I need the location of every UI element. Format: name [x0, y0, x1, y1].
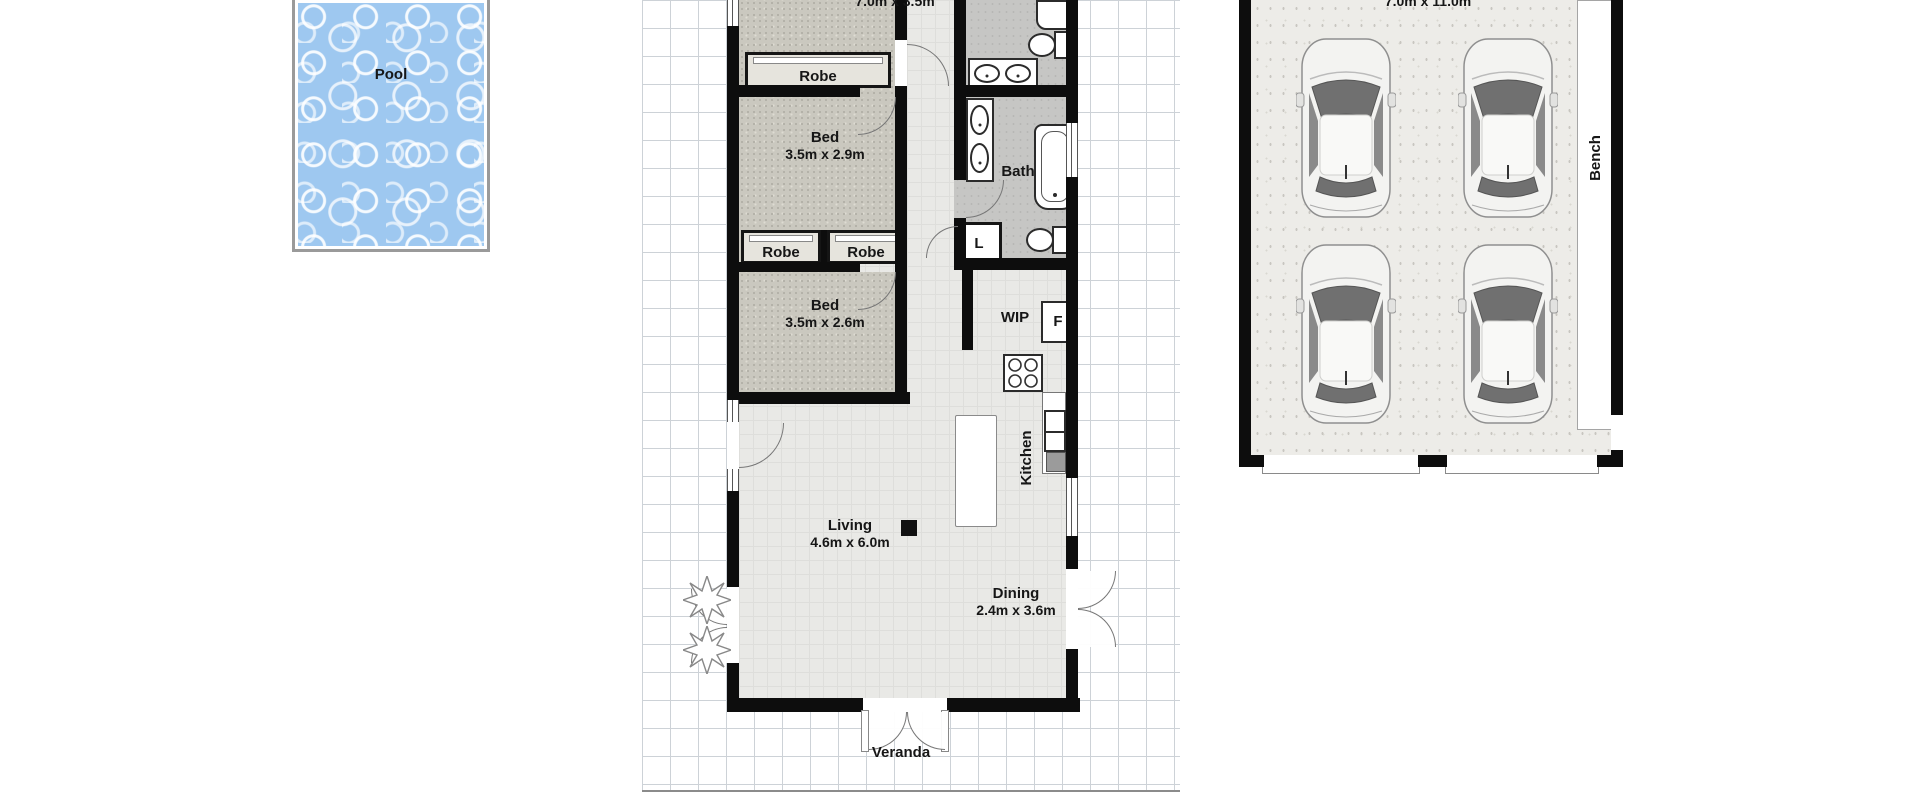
robe-sliding-door — [835, 235, 897, 242]
car-icon — [1296, 240, 1396, 428]
kitchen-label: Kitchen — [1019, 403, 1035, 513]
room-dims: 3.5m x 2.6m — [745, 314, 905, 330]
robe-left-label: Robe — [762, 245, 800, 261]
pool: Pool — [292, 0, 490, 252]
wall — [954, 85, 1078, 97]
room-label: Dining — [936, 586, 1096, 602]
laundry-label: L — [974, 236, 983, 252]
room-label: Living — [770, 518, 930, 534]
plant-icon — [683, 576, 731, 624]
robe-right: Robe — [827, 230, 905, 264]
floor-plan: Pool Robe Robe Robe L — [0, 0, 1920, 800]
car-icon — [1458, 34, 1558, 222]
room-dims: 3.5m x 2.9m — [745, 146, 905, 162]
toilet-fixture — [1026, 228, 1054, 252]
wall — [1239, 455, 1264, 467]
garage-bench — [1577, 0, 1611, 430]
bench-label: Bench — [1588, 122, 1604, 194]
dining-label-block: Dining 2.4m x 3.6m — [936, 586, 1096, 618]
wall — [954, 0, 966, 180]
island-bench — [955, 415, 997, 527]
master-bed-dims: 7.0m x 3.5m — [820, 0, 970, 9]
bath-label: Bath — [968, 164, 1068, 180]
room-dims: 4.6m x 6.0m — [770, 534, 930, 550]
veranda-label: Veranda — [821, 745, 981, 761]
living-label-block: Living 4.6m x 6.0m — [770, 518, 930, 550]
garage-door — [1262, 467, 1420, 474]
wall — [1611, 0, 1623, 415]
sink-divider — [1046, 431, 1064, 433]
door-opening — [863, 698, 947, 712]
pool-label: Pool — [298, 67, 484, 83]
room-label: Bed — [745, 130, 905, 146]
stove-burners — [1005, 356, 1041, 390]
bed1-label-block: Bed 3.5m x 2.9m — [745, 130, 905, 162]
dishwasher — [1046, 452, 1066, 472]
stove-fixture — [1003, 354, 1043, 392]
bed2-label-block: Bed 3.5m x 2.6m — [745, 298, 905, 330]
sink-fixture — [974, 64, 1000, 83]
plant-icon — [683, 626, 731, 674]
master-robe: Robe — [745, 52, 891, 88]
window — [1066, 478, 1078, 536]
garage-dims: 7.0m x 11.0m — [1348, 0, 1508, 9]
car-icon — [1296, 34, 1396, 222]
garage-door — [1445, 467, 1599, 474]
sink-fixture — [970, 105, 989, 135]
room-label: Bed — [745, 298, 905, 314]
window — [727, 469, 739, 491]
master-robe-label: Robe — [799, 69, 837, 85]
wall — [1418, 455, 1447, 467]
robe-right-label: Robe — [847, 245, 885, 261]
wall — [739, 85, 860, 97]
wip-label: WIP — [975, 310, 1055, 326]
wall — [1239, 0, 1251, 467]
kitchen-sink — [1044, 410, 1066, 452]
sink-fixture — [1005, 64, 1031, 83]
robe-left: Robe — [741, 230, 821, 264]
door-opening — [727, 422, 739, 469]
pool-water: Pool — [298, 3, 484, 246]
wall — [962, 262, 973, 350]
wall — [1597, 455, 1623, 467]
window — [727, 0, 739, 26]
door-opening — [895, 40, 907, 86]
vanity-counter — [968, 58, 1038, 88]
wall — [739, 262, 860, 272]
robe-sliding-door — [749, 235, 813, 242]
wall — [739, 392, 910, 404]
room-dims: 2.4m x 3.6m — [936, 602, 1096, 618]
car-icon — [1458, 240, 1558, 428]
window — [727, 400, 739, 422]
toilet-fixture — [1028, 33, 1056, 57]
robe-sliding-door — [753, 57, 883, 64]
